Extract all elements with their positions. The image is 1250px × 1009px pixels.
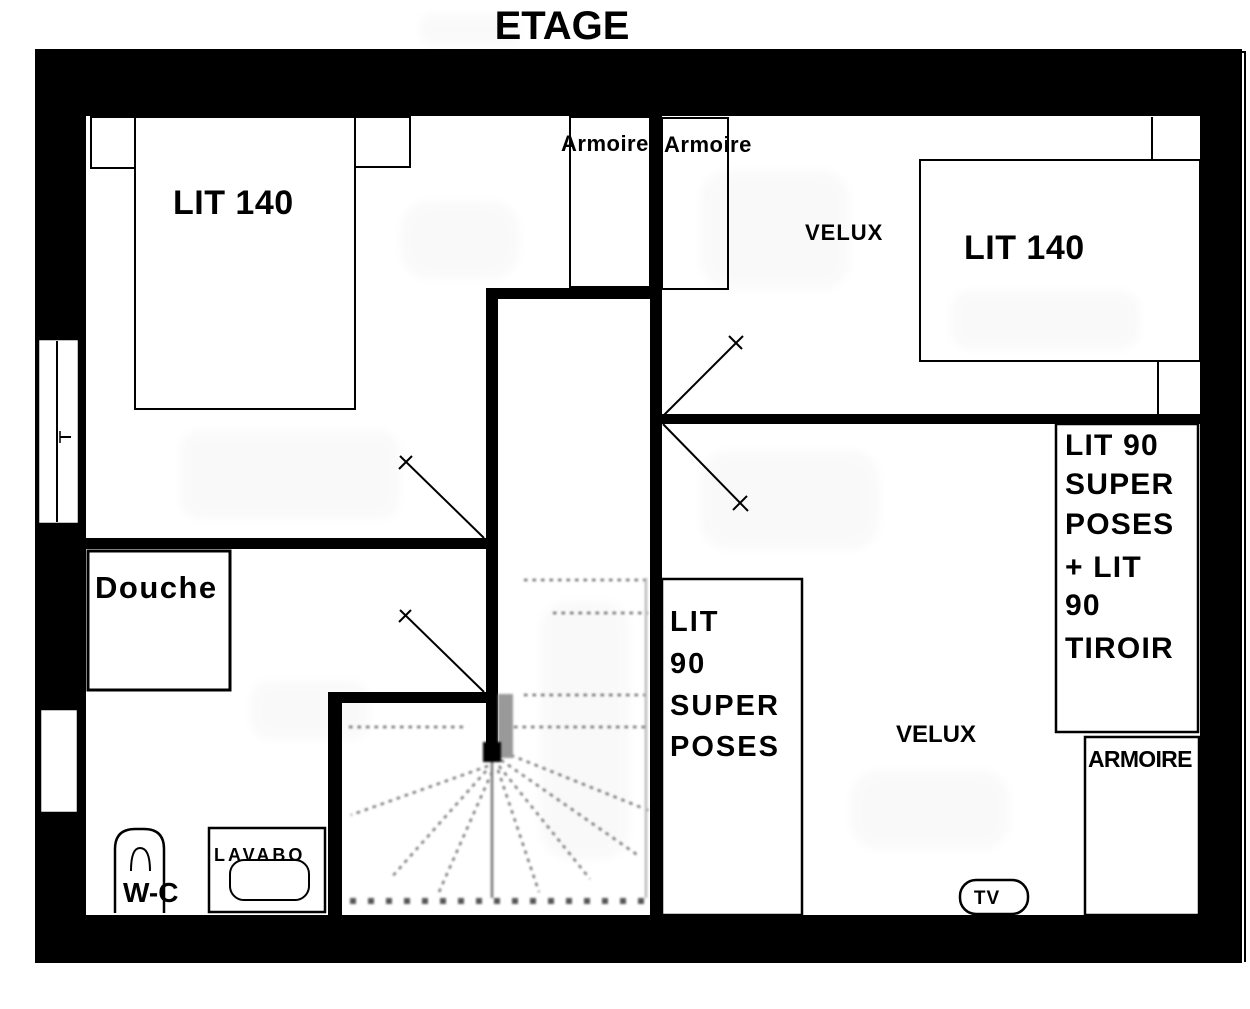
svg-text:TV: TV [974,888,1000,909]
svg-text:LIT: LIT [670,606,720,638]
svg-text:ARMOIRE: ARMOIRE [1088,746,1192,772]
svg-text:Armoire: Armoire [561,131,649,156]
svg-text:90: 90 [670,648,706,680]
svg-text:VELUX: VELUX [896,721,976,748]
svg-text:90: 90 [1065,589,1101,622]
svg-text:Douche: Douche [95,570,218,605]
svg-text:+ LIT: + LIT [1065,551,1142,584]
svg-text:POSES: POSES [1065,508,1174,541]
svg-text:TIROIR: TIROIR [1065,632,1174,665]
svg-text:LIT 140: LIT 140 [173,184,294,222]
svg-text:POSES: POSES [670,731,780,763]
svg-text:W-C: W-C [123,877,178,908]
svg-text:LIT 90: LIT 90 [1065,429,1159,462]
svg-text:SUPER: SUPER [1065,468,1174,501]
svg-text:Armoire: Armoire [664,132,752,157]
svg-text:SUPER: SUPER [670,690,780,722]
svg-text:LIT 140: LIT 140 [964,229,1085,267]
svg-text:LAVABO: LAVABO [214,845,305,865]
